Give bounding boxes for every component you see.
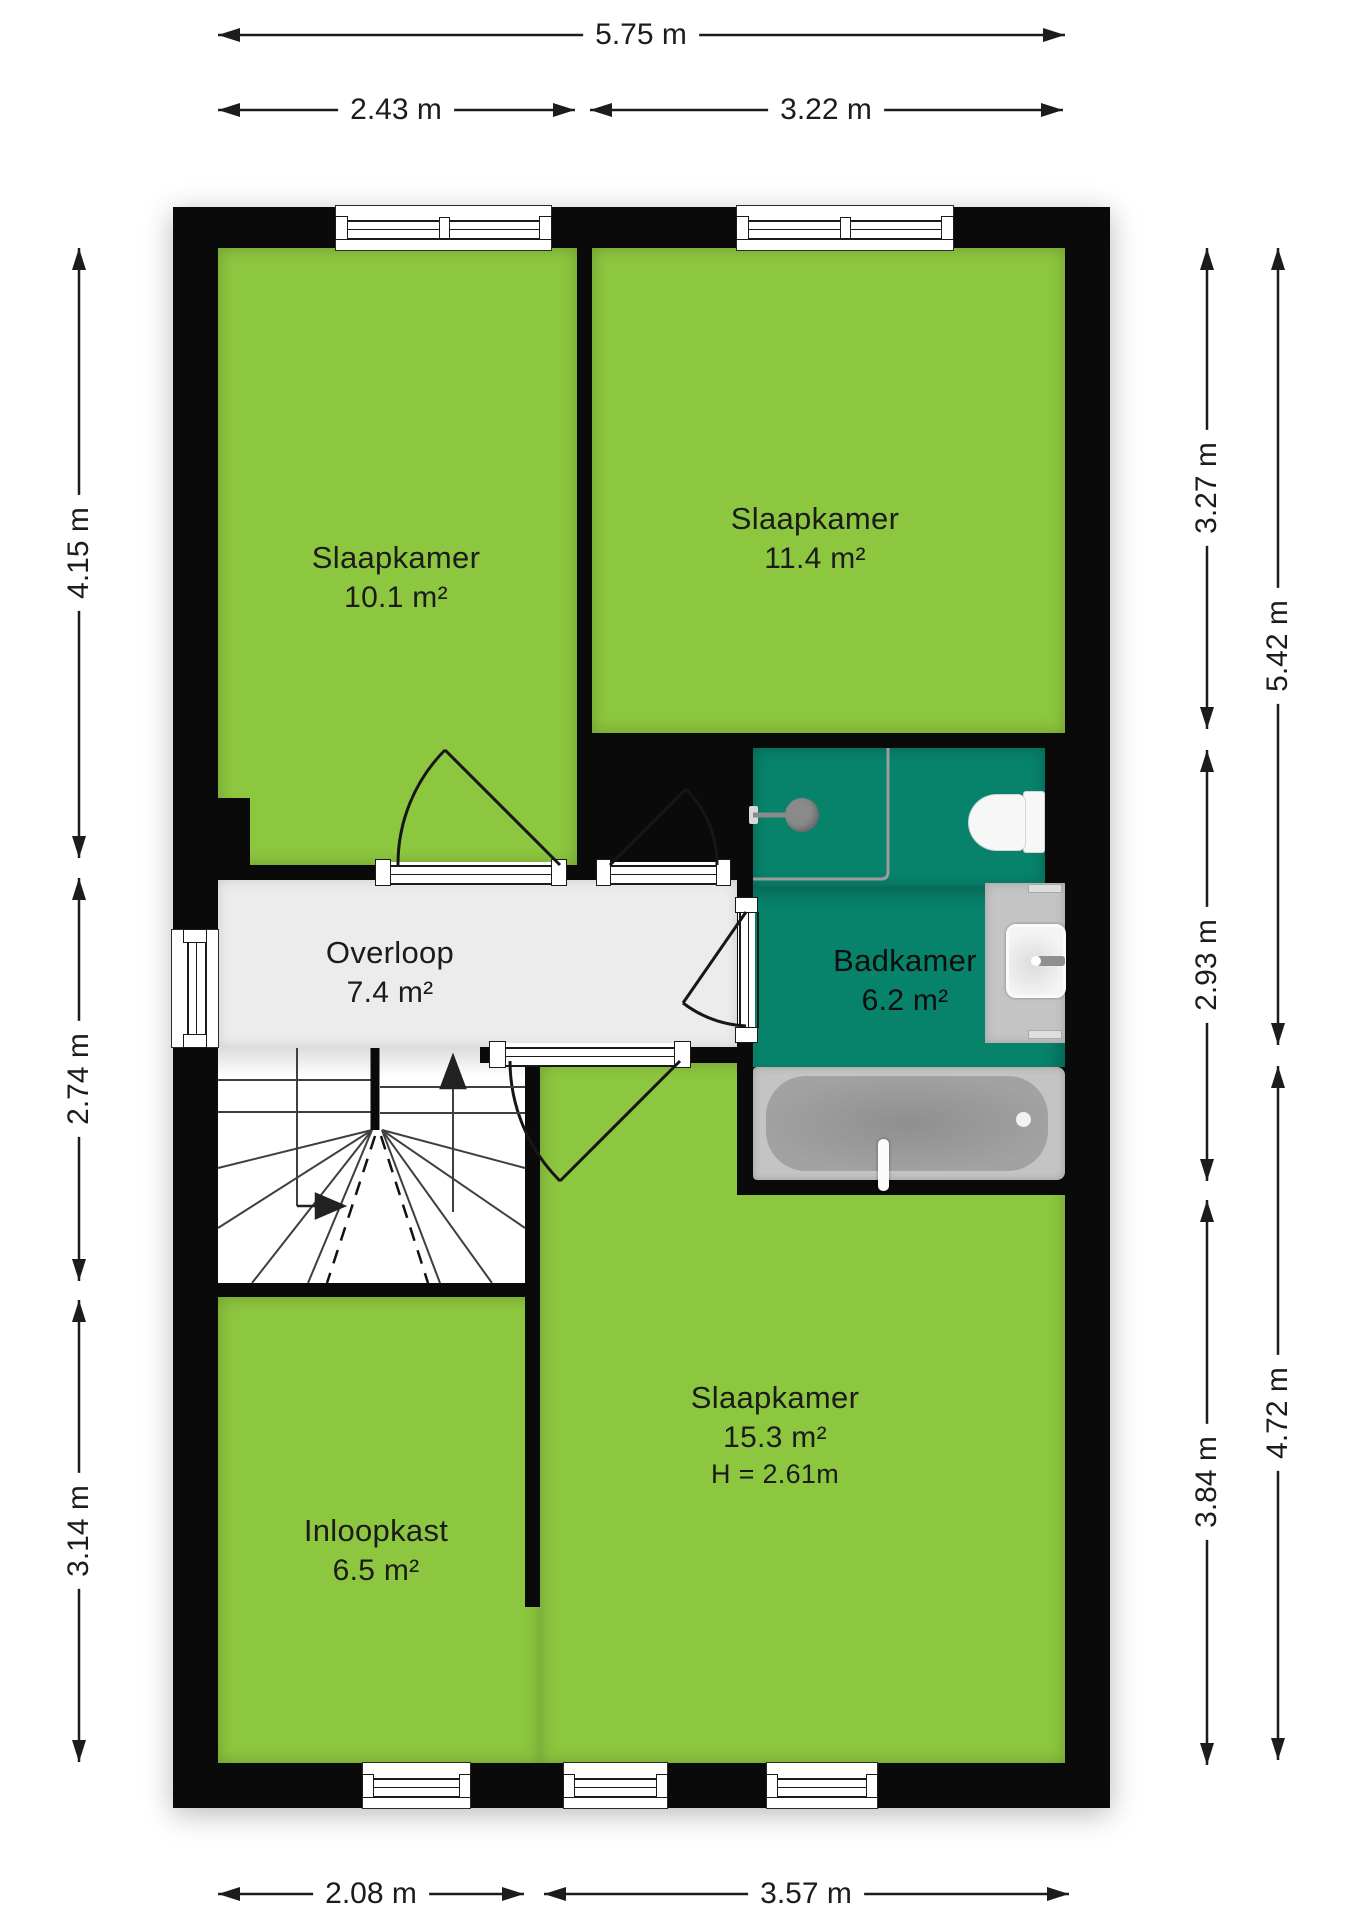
- room-area: 6.2 m²: [833, 981, 977, 1021]
- window-frame: [572, 1778, 659, 1798]
- room-name: Overloop: [326, 933, 454, 973]
- room-name: Slaapkamer: [312, 538, 480, 578]
- door-jamb-bottom: [735, 1027, 758, 1043]
- room-name: Inloopkast: [304, 1511, 448, 1551]
- shower-head-icon: [785, 798, 819, 832]
- door-jamb-left: [489, 1041, 506, 1068]
- room-height: H = 2.61m: [691, 1458, 859, 1490]
- door-badkamer: [738, 912, 755, 1028]
- window-jamb-left: [335, 216, 348, 240]
- door-bedroom3: [505, 1043, 675, 1066]
- dim-right-inner-top: 3.27 m: [1189, 430, 1225, 546]
- vanity-lip-bottom: [1028, 1030, 1062, 1039]
- door-frame: [390, 865, 552, 885]
- dim-top-left: 2.43 m: [338, 92, 454, 128]
- window-bottom-3: [766, 1762, 878, 1809]
- window-jamb-right: [941, 216, 954, 240]
- stairwell-floor: [218, 1047, 525, 1283]
- sink-faucet: [1037, 956, 1065, 966]
- sink-faucet-dot: [1031, 956, 1041, 966]
- door-jamb-left: [596, 859, 611, 886]
- door-jamb-right: [674, 1041, 691, 1068]
- window-jamb-top: [183, 929, 207, 943]
- window-jamb-left: [736, 216, 749, 240]
- hall-overloop-floor: [218, 880, 737, 1047]
- toilet-tank: [1023, 791, 1045, 853]
- window-overloop-left: [171, 929, 219, 1048]
- window-bedroom1-top: [335, 205, 552, 251]
- dim-top-total: 5.75 m: [583, 17, 699, 53]
- toilet-bowl: [968, 794, 1026, 851]
- dim-bottom-left: 2.08 m: [313, 1876, 429, 1912]
- window-jamb-right: [539, 216, 552, 240]
- dim-left-middle: 2.74 m: [61, 1021, 97, 1137]
- door-jamb-right: [551, 859, 567, 886]
- window-frame: [775, 1778, 869, 1798]
- dim-right-outer-bottom: 4.72 m: [1260, 1355, 1296, 1471]
- window-bedroom2-top: [736, 205, 954, 251]
- door-bedroom1: [390, 862, 552, 883]
- wall-chimney-bump: [218, 798, 250, 865]
- room-name: Badkamer: [833, 941, 977, 981]
- room-slaapkamer-2-floor: [592, 248, 1065, 733]
- bathtub-faucet: [878, 1139, 889, 1191]
- window-jamb-bottom: [183, 1034, 207, 1048]
- dim-left-bottom: 3.14 m: [61, 1473, 97, 1589]
- label-badkamer: Badkamer 6.2 m²: [833, 941, 977, 1021]
- label-slaapkamer-1: Slaapkamer 10.1 m²: [312, 538, 480, 618]
- window-bottom-1: [362, 1762, 471, 1809]
- window-mullion: [439, 217, 450, 239]
- window-mullion: [840, 217, 851, 239]
- window-frame: [187, 938, 207, 1039]
- window-frame: [371, 1778, 462, 1798]
- label-inloopkast: Inloopkast 6.5 m²: [304, 1511, 448, 1591]
- dim-right-inner-middle: 2.93 m: [1189, 907, 1225, 1023]
- label-overloop: Overloop 7.4 m²: [326, 933, 454, 1013]
- floor-plan: Slaapkamer 10.1 m² Slaapkamer 11.4 m² Ov…: [0, 0, 1358, 1920]
- window-jamb-right: [459, 1774, 471, 1798]
- label-slaapkamer-2: Slaapkamer 11.4 m²: [731, 499, 899, 579]
- wall-stair-partition: [525, 1063, 540, 1607]
- dim-right-inner-bottom: 3.84 m: [1189, 1424, 1225, 1540]
- room-area: 10.1 m²: [312, 578, 480, 618]
- dim-bottom-right: 3.57 m: [748, 1876, 864, 1912]
- door-jamb-left: [375, 859, 391, 886]
- shower-mixer: [749, 806, 758, 824]
- label-slaapkamer-3: Slaapkamer 15.3 m² H = 2.61m: [691, 1378, 859, 1490]
- door-frame: [610, 865, 717, 885]
- door-bedroom2: [610, 862, 717, 883]
- window-jamb-left: [766, 1774, 778, 1798]
- room-area: 11.4 m²: [731, 539, 899, 579]
- dim-right-outer-top: 5.42 m: [1260, 588, 1296, 704]
- room-name: Slaapkamer: [731, 499, 899, 539]
- bathtub-drain: [1016, 1112, 1031, 1127]
- window-jamb-left: [563, 1774, 575, 1798]
- door-jamb-right: [716, 859, 731, 886]
- bathtub-basin: [766, 1076, 1048, 1171]
- door-frame: [505, 1047, 675, 1067]
- window-jamb-left: [362, 1774, 374, 1798]
- door-jamb-top: [735, 897, 758, 913]
- room-area: 7.4 m²: [326, 973, 454, 1013]
- window-jamb-right: [866, 1774, 878, 1798]
- dim-left-top: 4.15 m: [61, 495, 97, 611]
- room-name: Slaapkamer: [691, 1378, 859, 1418]
- room-area: 6.5 m²: [304, 1551, 448, 1591]
- vanity-lip-top: [1028, 884, 1062, 893]
- room-area: 15.3 m²: [691, 1418, 859, 1458]
- dim-top-right: 3.22 m: [768, 92, 884, 128]
- door-frame: [739, 912, 759, 1028]
- window-bottom-2: [563, 1762, 668, 1809]
- window-jamb-right: [656, 1774, 668, 1798]
